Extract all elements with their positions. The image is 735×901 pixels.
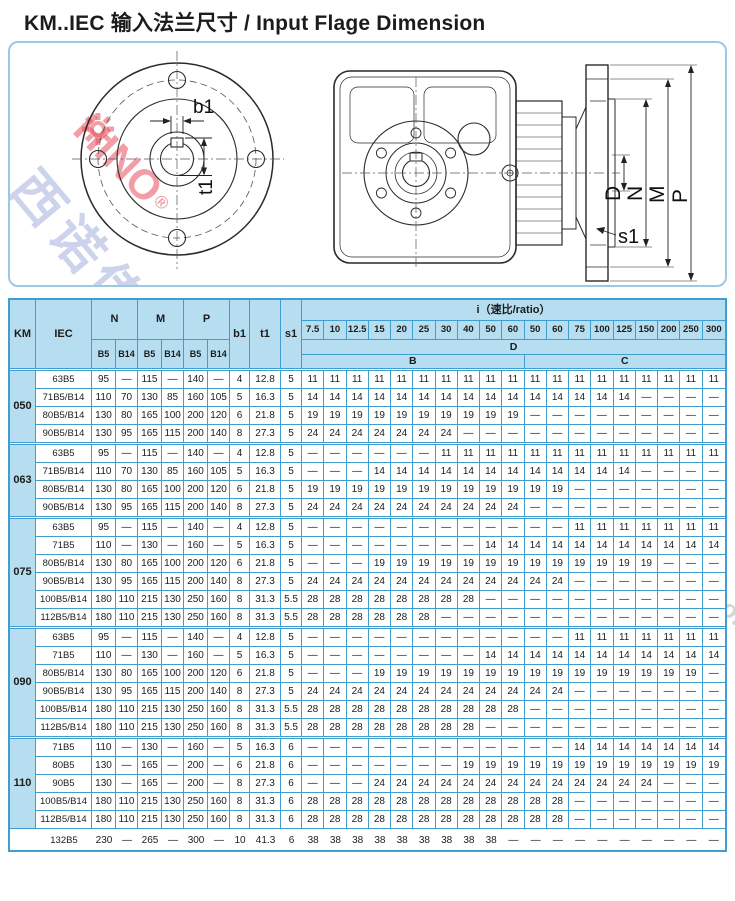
dim-cell: 180	[92, 793, 116, 811]
ratio-cell: 19	[324, 407, 346, 425]
ratio-cell: —	[703, 811, 725, 829]
col-header-ratio: 75	[569, 321, 591, 340]
table-row: 112B5/B14180110215130250160831.35.528282…	[10, 609, 725, 627]
ratio-cell: —	[458, 519, 480, 537]
dim-cell: 130	[92, 775, 116, 793]
ratio-cell: 19	[302, 407, 324, 425]
col-header-s1: s1	[281, 300, 302, 369]
ratio-cell: —	[636, 591, 658, 609]
dim-cell: 95	[92, 519, 116, 537]
ratio-cell: 24	[324, 425, 346, 443]
dim-cell: —	[116, 445, 138, 463]
dim-cell: 21.8	[250, 665, 281, 683]
ratio-cell: 38	[391, 832, 413, 850]
col-subheader-mount: B5	[138, 340, 162, 369]
dim-cell: 130	[92, 665, 116, 683]
dim-cell: 5	[281, 445, 302, 463]
ratio-cell: 19	[658, 757, 680, 775]
ratio-cell: 19	[413, 481, 435, 499]
dim-cell: 165	[138, 481, 162, 499]
ratio-cell: —	[680, 701, 702, 719]
dim-cell: 250	[184, 811, 208, 829]
ratio-cell: 14	[480, 647, 502, 665]
dim-cell: 8	[230, 683, 250, 701]
ratio-cell: 19	[369, 555, 391, 573]
ratio-cell: 24	[413, 683, 435, 701]
ratio-cell: 19	[525, 757, 547, 775]
ratio-cell: —	[391, 629, 413, 647]
ratio-cell: 28	[347, 793, 369, 811]
ratio-cell: —	[324, 519, 346, 537]
ratio-cell: 19	[614, 555, 636, 573]
ratio-cell: 11	[703, 371, 725, 389]
ratio-cell: —	[658, 719, 680, 737]
ratio-cell: 28	[369, 719, 391, 737]
ratio-cell: —	[324, 665, 346, 683]
iec-cell: 63B5	[36, 519, 92, 537]
ratio-cell: 24	[302, 683, 324, 701]
col-header-ratio: 100	[591, 321, 613, 340]
ratio-cell: 24	[436, 573, 458, 591]
ratio-cell: 14	[413, 389, 435, 407]
ratio-cell: 28	[347, 701, 369, 719]
ratio-cell: 14	[636, 647, 658, 665]
ratio-cell: 14	[591, 739, 613, 757]
ratio-cell: 24	[502, 683, 524, 701]
dim-cell: 115	[162, 499, 184, 517]
ratio-cell: 11	[458, 445, 480, 463]
ratio-cell: 24	[391, 683, 413, 701]
ratio-cell: 28	[436, 719, 458, 737]
ratio-cell: —	[480, 739, 502, 757]
ratio-cell: 14	[480, 389, 502, 407]
ratio-cell: 14	[614, 389, 636, 407]
dim-cell: 95	[92, 629, 116, 647]
dim-cell: 130	[162, 793, 184, 811]
col-header-ratio: 30	[436, 321, 458, 340]
dim-cell: 165	[138, 665, 162, 683]
dim-cell: —	[116, 832, 138, 850]
ratio-cell: —	[614, 719, 636, 737]
col-header-b1: b1	[230, 300, 250, 369]
ratio-cell: —	[636, 811, 658, 829]
col-header-ratio: 40	[458, 321, 480, 340]
dim-cell: 8	[230, 775, 250, 793]
dim-cell: 31.3	[250, 609, 281, 627]
ratio-cell: —	[324, 739, 346, 757]
ratio-cell: —	[703, 719, 725, 737]
ratio-cell: —	[347, 519, 369, 537]
ratio-cell: 24	[591, 775, 613, 793]
ratio-cell: —	[680, 683, 702, 701]
ratio-cell: 14	[658, 537, 680, 555]
dim-cell: —	[162, 757, 184, 775]
dim-cell: 5.5	[281, 609, 302, 627]
ratio-cell: 28	[369, 609, 391, 627]
ratio-cell: 14	[569, 463, 591, 481]
col-header-ratio: 12.5	[347, 321, 369, 340]
dim-cell: 95	[116, 573, 138, 591]
dim-cell: —	[116, 775, 138, 793]
dim-cell: 200	[184, 665, 208, 683]
ratio-cell: 14	[703, 647, 725, 665]
ratio-cell: 11	[636, 445, 658, 463]
ratio-cell: —	[413, 629, 435, 647]
dim-cell: 80	[116, 665, 138, 683]
ratio-cell: 11	[347, 371, 369, 389]
ratio-cell: —	[658, 683, 680, 701]
ratio-cell: 28	[391, 719, 413, 737]
ratio-cell: —	[636, 701, 658, 719]
ratio-cell: 28	[391, 609, 413, 627]
dim-cell: 250	[184, 591, 208, 609]
ratio-cell: 28	[347, 609, 369, 627]
ratio-cell: 24	[547, 683, 569, 701]
dim-cell: —	[208, 519, 230, 537]
dim-cell: 115	[162, 425, 184, 443]
ratio-cell: —	[302, 555, 324, 573]
ratio-cell: —	[458, 647, 480, 665]
ratio-cell: —	[703, 591, 725, 609]
ratio-cell: —	[569, 573, 591, 591]
ratio-cell: —	[703, 683, 725, 701]
dim-cell: 120	[208, 407, 230, 425]
ratio-cell: 19	[525, 481, 547, 499]
dim-cell: 215	[138, 719, 162, 737]
dim-cell: 95	[92, 371, 116, 389]
dim-cell: 130	[138, 647, 162, 665]
ratio-cell: —	[658, 591, 680, 609]
ratio-cell: 11	[636, 629, 658, 647]
dim-cell: 12.8	[250, 371, 281, 389]
dim-cell: 130	[92, 757, 116, 775]
drawing-panel: 西诺传动 HINO ®	[8, 41, 727, 287]
dim-cell: 110	[92, 537, 116, 555]
ratio-cell: 28	[525, 811, 547, 829]
ratio-cell: 24	[458, 775, 480, 793]
ratio-cell: —	[591, 499, 613, 517]
dim-cell: 130	[162, 701, 184, 719]
ratio-cell: 19	[436, 665, 458, 683]
col-subheader-mount: B14	[162, 340, 184, 369]
ratio-cell: 11	[591, 371, 613, 389]
ratio-cell: —	[569, 683, 591, 701]
ratio-cell: —	[436, 609, 458, 627]
ratio-cell: 28	[547, 793, 569, 811]
dim-cell: 165	[138, 757, 162, 775]
ratio-cell: 11	[658, 519, 680, 537]
ratio-cell: 14	[569, 389, 591, 407]
ratio-cell: 11	[658, 629, 680, 647]
dim-cell: 5	[230, 537, 250, 555]
dim-cell: 120	[208, 481, 230, 499]
ratio-cell: —	[680, 425, 702, 443]
dim-cell: 165	[138, 407, 162, 425]
ratio-cell: —	[391, 519, 413, 537]
ratio-cell: 24	[436, 425, 458, 443]
ratio-cell: 24	[369, 425, 391, 443]
dim-cell: 110	[92, 463, 116, 481]
dim-cell: 140	[184, 519, 208, 537]
ratio-cell: 11	[324, 371, 346, 389]
ratio-cell: 19	[436, 555, 458, 573]
iec-cell: 71B5/B14	[36, 463, 92, 481]
ratio-cell: —	[525, 499, 547, 517]
dim-cell: 110	[116, 719, 138, 737]
ratio-cell: —	[391, 647, 413, 665]
table-row: 71B5110—130—160—516.35————————1414141414…	[10, 537, 725, 555]
dim-cell: 6	[281, 739, 302, 757]
dim-cell: —	[208, 775, 230, 793]
table-row: 80B5/B1413080165100200120621.85———191919…	[10, 555, 725, 573]
ratio-cell: 11	[636, 371, 658, 389]
dim-cell: 160	[184, 537, 208, 555]
ratio-cell: 19	[547, 555, 569, 573]
dim-cell: 130	[138, 463, 162, 481]
ratio-cell: —	[569, 591, 591, 609]
dim-cell: 110	[116, 793, 138, 811]
dim-cell: —	[208, 445, 230, 463]
ratio-cell: 19	[591, 555, 613, 573]
ratio-cell: —	[369, 629, 391, 647]
dim-cell: 165	[138, 499, 162, 517]
ratio-cell: —	[658, 573, 680, 591]
dim-cell: 6	[281, 793, 302, 811]
dim-cell: 5	[281, 407, 302, 425]
iec-cell: 90B5/B14	[36, 499, 92, 517]
dim-cell: 130	[138, 739, 162, 757]
col-header-p: P	[184, 300, 230, 340]
ratio-cell: —	[569, 481, 591, 499]
dim-cell: 21.8	[250, 555, 281, 573]
ratio-cell: —	[614, 683, 636, 701]
ratio-cell: 24	[458, 499, 480, 517]
dim-cell: 5	[281, 555, 302, 573]
ratio-cell: 24	[413, 775, 435, 793]
ratio-cell: 14	[525, 389, 547, 407]
ratio-cell: —	[547, 425, 569, 443]
ratio-cell: 14	[480, 537, 502, 555]
ratio-cell: —	[458, 425, 480, 443]
ratio-cell: 38	[347, 832, 369, 850]
ratio-cell: 28	[347, 591, 369, 609]
ratio-cell: 11	[680, 519, 702, 537]
col-header-ratio: 20	[391, 321, 413, 340]
table-row: 80B5/B1413080165100200120621.85191919191…	[10, 481, 725, 499]
ratio-cell: 24	[502, 499, 524, 517]
dim-cell: 5	[281, 573, 302, 591]
ratio-cell: 19	[302, 481, 324, 499]
ratio-cell: —	[525, 629, 547, 647]
ratio-cell: —	[703, 425, 725, 443]
dim-cell: —	[116, 537, 138, 555]
dim-cell: 160	[184, 647, 208, 665]
col-header-ratio: 15	[369, 321, 391, 340]
ratio-cell: 19	[502, 555, 524, 573]
dim-cell: 120	[208, 555, 230, 573]
ratio-cell: —	[324, 647, 346, 665]
ratio-cell: —	[347, 647, 369, 665]
dim-cell: 5	[281, 389, 302, 407]
ratio-cell: 11	[436, 445, 458, 463]
table-row: 80B5130—165—200—621.86———————19191919191…	[10, 757, 725, 775]
dim-cell: 6	[281, 775, 302, 793]
dim-cell: 130	[92, 573, 116, 591]
col-header-ratio: 300	[703, 321, 725, 340]
ratio-cell: —	[591, 683, 613, 701]
ratio-cell: 28	[324, 701, 346, 719]
ratio-cell: 19	[369, 407, 391, 425]
ratio-cell: 28	[413, 591, 435, 609]
ratio-cell: 19	[658, 665, 680, 683]
dim-cell: 6	[281, 832, 302, 850]
ratio-cell: 14	[614, 537, 636, 555]
dim-cell: 16.3	[250, 463, 281, 481]
dim-cell: 165	[138, 555, 162, 573]
table-row: 07563B595—115—140—412.85————————————1111…	[10, 519, 725, 537]
dim-cell: 110	[116, 609, 138, 627]
dim-cell: 21.8	[250, 757, 281, 775]
ratio-cell: —	[680, 555, 702, 573]
ratio-cell: —	[703, 793, 725, 811]
ratio-cell: —	[680, 389, 702, 407]
ratio-cell: 28	[413, 793, 435, 811]
ratio-cell: —	[547, 719, 569, 737]
ratio-cell: 24	[458, 573, 480, 591]
ratio-cell: 14	[591, 647, 613, 665]
ratio-cell: 28	[302, 591, 324, 609]
ratio-cell: —	[591, 832, 613, 850]
ratio-cell: —	[658, 701, 680, 719]
dim-cell: 140	[208, 499, 230, 517]
ratio-cell: —	[636, 793, 658, 811]
ratio-cell: 24	[480, 573, 502, 591]
dim-cell: 95	[116, 683, 138, 701]
dim-cell: 16.3	[250, 537, 281, 555]
ratio-cell: 19	[614, 757, 636, 775]
dim-cell: —	[208, 739, 230, 757]
ratio-cell: 19	[324, 481, 346, 499]
ratio-cell: 24	[436, 683, 458, 701]
ratio-cell: 11	[369, 371, 391, 389]
ratio-cell: 38	[324, 832, 346, 850]
ratio-cell: 24	[525, 573, 547, 591]
ratio-cell: 24	[391, 775, 413, 793]
ratio-cell: 28	[391, 811, 413, 829]
dim-cell: 95	[92, 445, 116, 463]
ratio-cell: —	[569, 425, 591, 443]
ratio-cell: 11	[569, 629, 591, 647]
table-row: 71B5110—130—160—516.35————————1414141414…	[10, 647, 725, 665]
table-row: 06363B595—115—140—412.85——————1111111111…	[10, 445, 725, 463]
ratio-cell: —	[302, 647, 324, 665]
ratio-cell: 28	[480, 811, 502, 829]
dim-label-p: P	[669, 189, 692, 203]
ratio-cell: 28	[436, 591, 458, 609]
ratio-cell: 28	[302, 811, 324, 829]
ratio-cell: —	[302, 537, 324, 555]
ratio-cell: —	[614, 407, 636, 425]
iec-cell: 63B5	[36, 629, 92, 647]
ratio-cell: —	[502, 629, 524, 647]
dim-cell: 100	[162, 407, 184, 425]
ratio-cell: —	[614, 793, 636, 811]
km-group-label: 110	[10, 739, 36, 829]
dim-cell: 16.3	[250, 647, 281, 665]
ratio-cell: 24	[369, 573, 391, 591]
dim-cell: 130	[92, 555, 116, 573]
ratio-cell: 28	[547, 811, 569, 829]
ratio-cell: 14	[369, 463, 391, 481]
ratio-cell: —	[680, 793, 702, 811]
dim-cell: —	[162, 537, 184, 555]
ratio-cell: 38	[369, 832, 391, 850]
col-subheader-mount: B5	[184, 340, 208, 369]
ratio-cell: —	[680, 407, 702, 425]
dim-cell: 5	[230, 647, 250, 665]
ratio-cell: —	[636, 499, 658, 517]
ratio-cell: —	[658, 425, 680, 443]
ratio-cell: —	[636, 389, 658, 407]
ratio-cell: 11	[703, 445, 725, 463]
dim-cell: 6	[230, 665, 250, 683]
ratio-cell: 19	[369, 481, 391, 499]
ratio-cell: 11	[436, 371, 458, 389]
ratio-cell: 24	[347, 683, 369, 701]
dim-cell: 70	[116, 389, 138, 407]
table-row: 90B5130—165—200—827.36———242424242424242…	[10, 775, 725, 793]
dim-cell: 165	[138, 425, 162, 443]
dim-cell: 140	[208, 573, 230, 591]
dim-cell: 31.3	[250, 591, 281, 609]
ratio-cell: —	[458, 537, 480, 555]
ratio-cell: —	[614, 591, 636, 609]
ratio-cell: 19	[569, 665, 591, 683]
ratio-cell: 28	[324, 811, 346, 829]
ratio-cell: 28	[525, 793, 547, 811]
ratio-cell: —	[569, 793, 591, 811]
ratio-cell: —	[636, 481, 658, 499]
ratio-cell: 14	[391, 389, 413, 407]
ratio-cell: 24	[480, 775, 502, 793]
ratio-cell: —	[658, 389, 680, 407]
dim-cell: 160	[208, 811, 230, 829]
dim-cell: 130	[138, 389, 162, 407]
ratio-cell: 28	[436, 701, 458, 719]
dim-cell: 100	[162, 481, 184, 499]
dim-cell: 100	[162, 555, 184, 573]
dim-cell: 200	[184, 555, 208, 573]
dim-cell: 110	[116, 591, 138, 609]
dim-cell: 230	[92, 832, 116, 850]
ratio-cell: 28	[391, 793, 413, 811]
km-group-label: 063	[10, 445, 36, 517]
dim-cell: 200	[184, 573, 208, 591]
iec-cell: 71B5	[36, 537, 92, 555]
ratio-cell: 14	[636, 739, 658, 757]
ratio-cell: 14	[591, 463, 613, 481]
ratio-cell: 14	[569, 647, 591, 665]
col-header-ratio: 50	[525, 321, 547, 340]
dim-cell: 160	[208, 609, 230, 627]
dim-cell: 250	[184, 609, 208, 627]
ratio-cell: —	[547, 739, 569, 757]
ratio-cell: 11	[680, 445, 702, 463]
dim-cell: 5.5	[281, 719, 302, 737]
dim-cell: 21.8	[250, 481, 281, 499]
ratio-cell: —	[302, 519, 324, 537]
ratio-cell: 14	[703, 739, 725, 757]
